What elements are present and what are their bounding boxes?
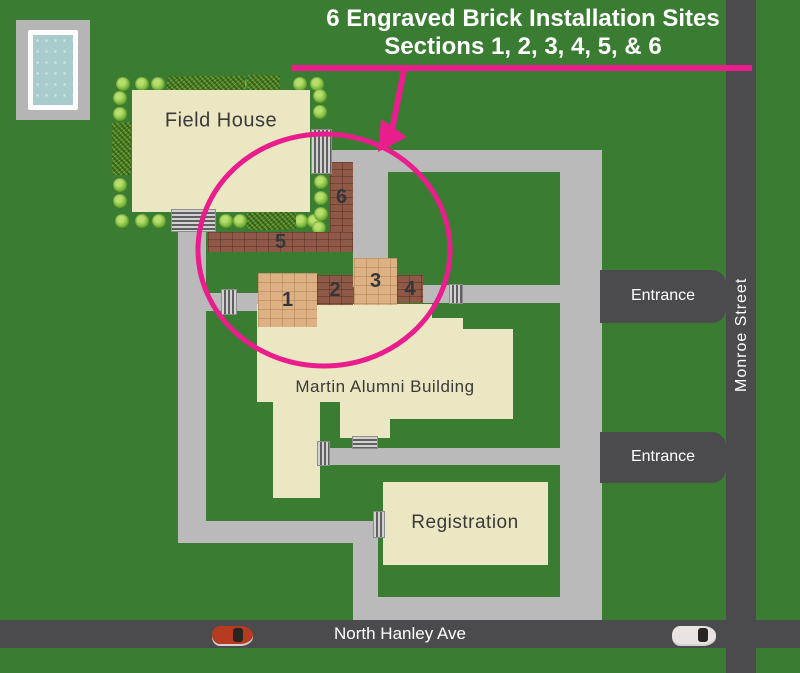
bush-icon [233,214,247,228]
entrance-north-label: Entrance [631,287,695,305]
brick-section-6: 6 [330,162,353,232]
section-number: 6 [336,186,347,209]
road-inner-bottom [178,521,378,543]
stairs-fieldhouse-east [312,130,331,173]
bush-icon [151,77,165,91]
stairs-west-path [222,290,236,314]
brick-section-1: 1 [258,273,317,327]
brick-section-5: 5 [208,232,353,252]
bush-icon [293,77,307,91]
arrowhead-icon [378,119,407,152]
brick-section-3: 3 [354,258,397,305]
section-number: 2 [329,279,340,302]
hedge-icon [247,75,280,90]
car-windshield [233,628,243,642]
section-number: 3 [370,270,381,293]
title-line-2: Sections 1, 2, 3, 4, 5, & 6 [238,33,800,61]
bush-icon [116,77,130,91]
monroe-street-label: Monroe Street [733,272,751,398]
bush-icon [113,178,127,192]
entrance-south-label: Entrance [631,448,695,466]
stairs-registration [374,512,384,537]
arrow-shaft [392,70,404,130]
brick-section-2: 2 [317,275,353,305]
bush-icon [313,105,327,119]
map-title: 6 Engraved Brick Installation Sites Sect… [238,5,800,61]
campus-site-map: 6 5 1 2 3 4 Field House Martin Alumni Bu… [0,0,800,673]
bush-icon [313,89,327,103]
pool-frame [28,30,78,110]
martin-alumni-label: Martin Alumni Building [295,377,474,397]
stairs-fieldhouse-south [172,210,215,231]
path-east [423,285,560,303]
title-line-1: 6 Engraved Brick Installation Sites [238,5,800,33]
section-number: 5 [275,231,286,254]
car-red-icon [212,626,253,644]
bush-icon [113,91,127,105]
stairs-martin-south [353,437,377,448]
section-number: 4 [404,278,415,301]
bush-icon [314,207,328,221]
stairs-east-path [450,285,462,303]
field-house-building [132,90,310,212]
bush-icon [152,214,166,228]
road-top [330,150,602,172]
bush-icon [113,194,127,208]
bush-icon [115,214,129,228]
bush-icon [135,214,149,228]
bush-icon [314,191,328,205]
north-hanley-label: North Hanley Ave [334,624,466,644]
car-white-icon [672,626,716,644]
stairs-south-path [318,442,329,465]
pool-water [33,35,73,105]
bush-icon [314,175,328,189]
bush-icon [219,214,233,228]
road-left-vertical [178,230,206,543]
pool-icon [16,20,90,120]
bush-icon [135,77,149,91]
car-windshield [698,628,708,642]
road-right-vertical [560,150,602,620]
field-house-label: Field House [165,110,277,133]
section-number: 1 [282,289,293,312]
hedge-icon [247,212,296,230]
brick-section-4: 4 [397,275,423,303]
hedge-icon [112,122,131,175]
registration-label: Registration [411,512,518,534]
bush-icon [294,214,308,228]
title-underline [292,65,752,71]
bush-icon [113,107,127,121]
path-south [328,448,560,465]
